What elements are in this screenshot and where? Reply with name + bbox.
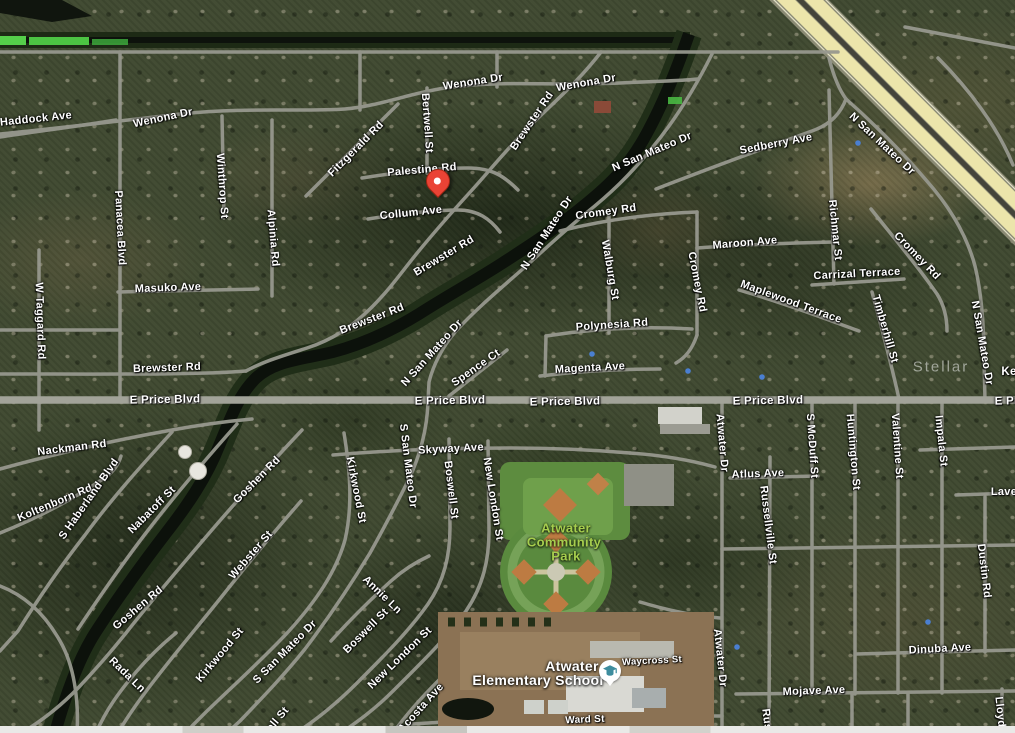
- road-label: N San Mateo Dr: [847, 110, 918, 177]
- road-label: E Price Blvd: [415, 394, 486, 407]
- road-label: Spence Ct: [449, 347, 502, 389]
- school-label: Elementary School: [472, 672, 603, 688]
- pin-center-dot: [432, 176, 442, 186]
- road-label: Russellville St: [757, 485, 779, 565]
- road-label: Panacea Blvd: [112, 190, 128, 266]
- road-label: S McDuff St: [804, 413, 821, 479]
- road-label: Polynesia Rd: [575, 316, 648, 333]
- road-label: Magenta Ave: [555, 360, 626, 376]
- road-label: W Taggard Rd: [33, 282, 48, 360]
- road-label: Goshen Rd: [231, 454, 283, 506]
- road-label: Timberhill St: [870, 294, 901, 365]
- road-label: Maplewood Terrace: [739, 278, 844, 326]
- road-label: Ward St: [565, 714, 605, 726]
- park-label: Atwater: [541, 521, 591, 536]
- road-label: Carrizal Terrace: [813, 266, 901, 283]
- school-poi-icon[interactable]: [599, 660, 621, 682]
- graduation-cap-icon: [599, 660, 621, 682]
- map-labels-layer: Wenona DrWenona DrWenona DrHaddock AveWi…: [0, 0, 1015, 733]
- road-label: Winthrop St: [214, 153, 231, 219]
- road-label: Atlus Ave: [731, 467, 784, 481]
- road-label: Mojave Ave: [782, 684, 845, 698]
- road-label: Skyway Ave: [418, 441, 484, 456]
- road-label: Valentine St: [889, 413, 906, 480]
- satellite-map-canvas[interactable]: Wenona DrWenona DrWenona DrHaddock AveWi…: [0, 0, 1015, 733]
- park-label: Park: [551, 549, 580, 564]
- road-label: Masuko Ave: [135, 281, 202, 295]
- road-label: Bertwell St: [419, 93, 435, 154]
- road-label: Collum Ave: [379, 204, 443, 222]
- road-label: Impala St: [932, 415, 949, 468]
- park-label: Community: [527, 535, 601, 550]
- road-label: Wenona Dr: [132, 106, 194, 130]
- road-label: E Price Blvd: [995, 394, 1015, 407]
- road-label: Boswell St: [441, 460, 460, 520]
- road-label: Nackman Rd: [37, 438, 108, 458]
- road-label: S San Mateo Dr: [251, 618, 320, 687]
- road-label: New London St: [481, 457, 506, 542]
- road-label: Lave: [991, 486, 1015, 498]
- road-label: E Price Blvd: [130, 393, 201, 406]
- road-label: Webster St: [227, 528, 276, 581]
- footer-strip: [0, 726, 1015, 733]
- road-label: Dustin Rd: [975, 543, 994, 599]
- road-label: Haddock Ave: [0, 109, 73, 128]
- road-label: N San Mateo Dr: [610, 130, 693, 174]
- road-label: Alpinia Rd: [265, 209, 282, 267]
- road-label: Brewster Rd: [338, 301, 406, 337]
- road-label: Fitzgerald Rd: [326, 119, 387, 180]
- road-label: S San Mateo Dr: [397, 423, 419, 509]
- watermark-label: Stellar: [913, 359, 970, 376]
- road-label: Atwater Dr: [713, 413, 730, 472]
- road-label: Cromey Rd: [685, 251, 708, 314]
- road-label: Brewster Rd: [508, 89, 556, 152]
- road-label: Huntington St: [844, 413, 863, 490]
- road-label: N San Mateo Dr: [969, 300, 996, 386]
- road-label: Nabatoff St: [126, 484, 178, 536]
- road-label: Boswell St: [341, 606, 391, 656]
- road-label: Walburg St: [599, 239, 621, 301]
- road-label: Sedberry Ave: [739, 131, 814, 157]
- road-label: Goshen Rd: [111, 584, 166, 633]
- road-label: Wenona Dr: [442, 71, 504, 92]
- road-label: Brewster Rd: [133, 361, 201, 375]
- road-label: Kirkwood St: [194, 625, 247, 684]
- road-label: Ke: [1001, 366, 1015, 378]
- road-label: Wenona Dr: [555, 72, 617, 94]
- road-label: Maroon Ave: [712, 234, 778, 252]
- road-label: Atwater Dr: [711, 628, 729, 688]
- road-label: Richmar St: [826, 199, 844, 261]
- road-label: Lloyd: [992, 696, 1007, 728]
- road-label: Cromey Rd: [575, 202, 637, 222]
- road-label: N San Mateo Dr: [519, 194, 576, 272]
- road-label: Rada Ln: [106, 655, 147, 695]
- road-label: E Price Blvd: [530, 395, 601, 408]
- road-label: E Price Blvd: [733, 394, 804, 407]
- road-label: Dinuba Ave: [908, 641, 971, 656]
- road-label: Brewster Rd: [412, 233, 477, 278]
- road-label: New London St: [366, 625, 435, 692]
- road-label: Kirkwood St: [344, 456, 369, 525]
- road-label: Waycross St: [622, 654, 682, 668]
